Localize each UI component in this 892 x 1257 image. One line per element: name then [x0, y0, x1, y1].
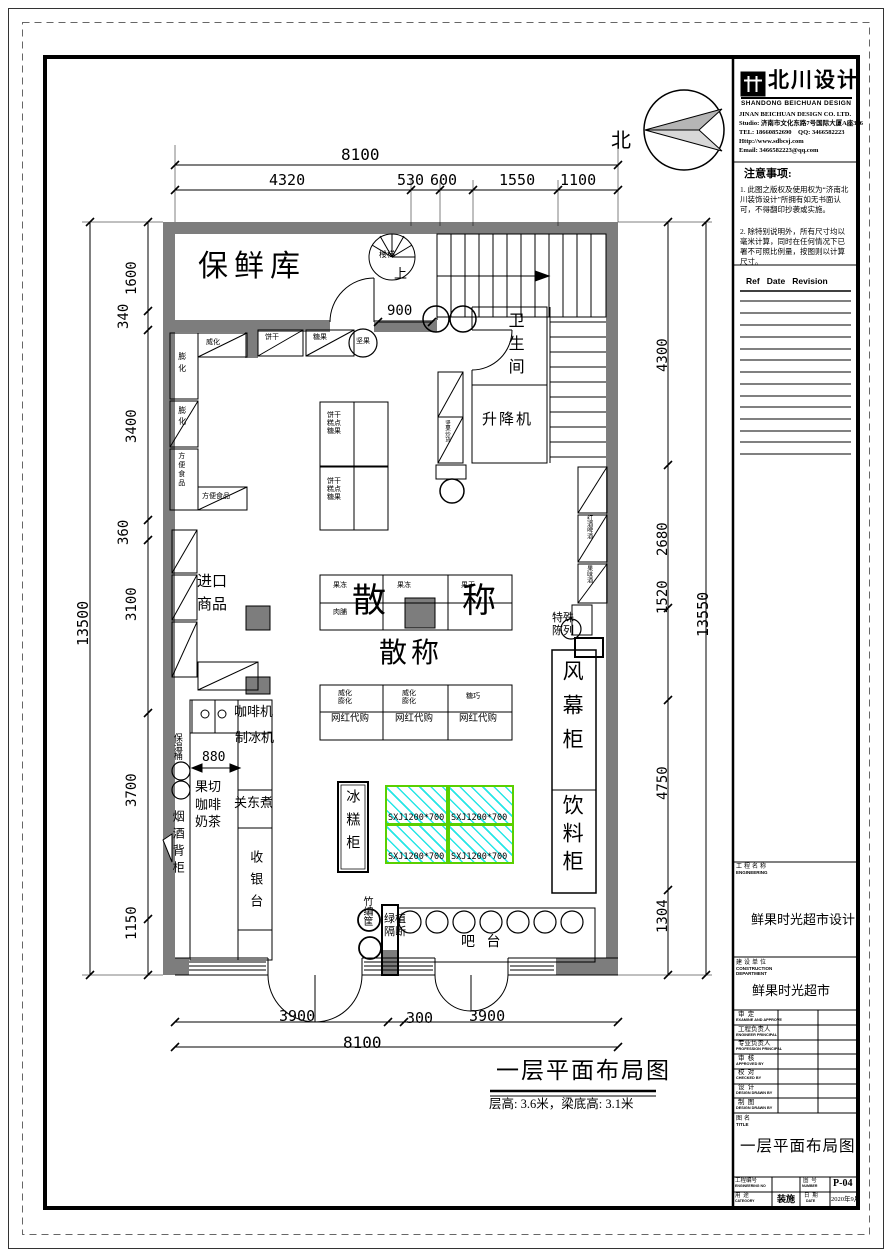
bulk-weigh-left: 散 — [352, 583, 386, 620]
drink-cabinet-label: 饮料柜 — [560, 794, 583, 892]
room-toilet: 卫生间 — [505, 312, 523, 388]
dim-left-6: 3700 — [124, 762, 140, 818]
shelf-wafer-top: 威化 — [206, 339, 220, 347]
footer-number-label-en: NUMBER — [802, 1185, 817, 1189]
dim-counter-880: 880 — [202, 750, 225, 765]
signature-row-examine-en: EXAMINE AND APPROVE — [736, 1019, 782, 1023]
footer-date-label-en: DATE — [806, 1200, 815, 1204]
footer-category-label-en: CATEGORY — [735, 1200, 754, 1204]
notes-title: 注意事项: — [744, 168, 792, 180]
dim-bottom-1: 3900 — [279, 1007, 315, 1025]
dim-top-5: 1100 — [560, 171, 596, 189]
air-curtain-cabinet-label: 风幕柜 — [560, 660, 583, 786]
dim-top-4: 1550 — [499, 171, 535, 189]
shelf-side-small: 坚果炒货 — [444, 420, 450, 460]
sxj-freezer-cell: SXJ1200*700 — [448, 824, 514, 864]
dim-top-3: 600 — [430, 171, 457, 189]
dim-left-3: 3400 — [124, 398, 140, 454]
sxj-model-label: SXJ1200*700 — [451, 852, 507, 862]
bamboo-basket-label: 竹编筐 — [361, 896, 372, 958]
signature-row-design-en: DESIGN DRAWN BY — [736, 1092, 772, 1096]
stair-note: 楼梯 — [379, 251, 395, 260]
construction-value: 鲜果时光超市 — [752, 984, 830, 998]
sxj-freezer-cell: SXJ1200*700 — [448, 785, 514, 825]
bulk-weigh-2: 散称 — [379, 639, 443, 670]
dim-right-1: 4300 — [655, 326, 671, 384]
shelf-puffed-2: 膨化 — [177, 406, 186, 446]
room-fresh-store: 保鲜库 — [198, 250, 306, 283]
dim-bottom-3: 3900 — [469, 1007, 505, 1025]
circles — [172, 306, 583, 959]
dim-left-1: 1600 — [124, 252, 140, 304]
company-line-5: Email: 3466582223@qq.com — [739, 148, 818, 155]
dim-right-3: 1520 — [655, 568, 671, 626]
dim-left-2: 340 — [116, 298, 132, 334]
dim-left-7: 1150 — [124, 898, 140, 948]
shelf-wine-beer: 红酒啤酒 — [585, 515, 592, 561]
dim-top-total: 8100 — [341, 145, 380, 164]
company-line-1: JINAN BEICHUAN DESIGN CO. LTD. — [739, 112, 851, 119]
signature-row-checked-en: CHECKED BY — [736, 1077, 761, 1081]
logo-text: 北川设计 — [768, 69, 860, 92]
special-display-label: 特殊陈列 — [552, 612, 576, 637]
shelf-convenience-v: 方便食品 — [177, 452, 185, 508]
plan-caption-subtitle: 层高: 3.6米，梁底高: 3.1米 — [489, 1098, 633, 1112]
dim-left-total: 13500 — [74, 585, 90, 661]
sheet-title-value: 一层平面布局图 — [740, 1138, 856, 1155]
fruit-cut-label: 果切咖啡奶茶 — [195, 778, 225, 831]
bulk-weigh-right: 称 — [462, 583, 496, 620]
footer-number-value: P-04 — [833, 1179, 852, 1189]
wc-lift-rooms — [436, 307, 547, 479]
shelf-candy-chocolate: 糖巧 — [466, 693, 480, 701]
company-line-4: Http://www.sdbcsj.com — [739, 139, 804, 146]
counters — [163, 650, 596, 975]
cigarette-cabinet-label: 烟酒背柜 — [171, 810, 184, 904]
company-line-2: Studio: 济南市文化东路7号国际大厦A座306 — [739, 121, 863, 128]
dim-right-4: 4750 — [655, 753, 671, 813]
signature-row-engineer-en: ENGINEER PRINCIPAL — [736, 1034, 777, 1038]
shelf-meat-jerky: 肉脯 — [333, 609, 347, 617]
dim-top-1: 4320 — [269, 171, 305, 189]
shelf-imported-goods: 进口商品 — [197, 571, 231, 616]
dim-left-4: 360 — [116, 514, 132, 550]
dim-bottom-total: 8100 — [343, 1033, 382, 1052]
sxj-model-label: SXJ1200*700 — [388, 852, 444, 862]
signature-row-drawn-en: DESIGN DRAWN BY — [736, 1107, 772, 1111]
shelf-convenience-h: 方便食品 — [202, 493, 230, 501]
dim-right-2: 2680 — [655, 510, 671, 568]
dim-right-5: 1304 — [655, 888, 671, 944]
shelf-biscuit-top: 饼干 — [265, 334, 279, 342]
engineering-value: 鲜果时光超市设计 — [751, 913, 855, 927]
sxj-freezer-cell: SXJ1200*700 — [385, 785, 448, 825]
shelf-wanghong-3: 网红代购 — [459, 714, 497, 724]
shelf-wafer-puffed-2: 威化膨化 — [402, 689, 418, 705]
north-compass-icon — [644, 90, 724, 170]
stair-up-label: 上 — [394, 267, 407, 281]
cashier-label: 收银台 — [248, 850, 262, 922]
ice-maker-label: 制冰机 — [235, 731, 274, 745]
north-label: 北 — [611, 130, 631, 152]
shelf-fruit-wine: 果味酒 — [585, 565, 592, 603]
dim-top-2: 530 — [397, 171, 424, 189]
footer-engineering-no-en: ENGINEERING NO — [735, 1185, 766, 1189]
footer-category-value: 装施 — [777, 1195, 795, 1204]
oden-label: 关东煮 — [234, 796, 273, 810]
sxj-freezer-cell: SXJ1200*700 — [385, 824, 448, 864]
dim-bottom-2: 300 — [406, 1009, 433, 1027]
company-line-3: TEL: 18660852690 QQ: 3466582223 — [739, 130, 844, 137]
shelf-jelly-1: 果冻 — [333, 582, 347, 590]
coffee-machine-label: 咖啡机 — [234, 705, 273, 719]
signature-row-approved-en: APPROVED BY — [736, 1063, 764, 1067]
shelf-jelly-2: 果冻 — [397, 582, 411, 590]
shelf-center-unit-1: 饼干糕点糖果 — [327, 411, 342, 435]
shelving — [170, 330, 607, 740]
shelf-center-unit-2: 饼干糕点糖果 — [327, 477, 342, 501]
ice-cream-cabinet-label: 冰糕柜 — [344, 789, 359, 869]
dim-right-total: 13550 — [694, 576, 710, 652]
shelf-wanghong-2: 网红代购 — [395, 714, 433, 724]
plan-caption-title: 一层平面布局图 — [496, 1058, 671, 1083]
notes-item-2: 2. 除特别说明外，所有尺寸均以毫米计算，同时在任何情况下已署不可照比例量，按图… — [740, 227, 852, 268]
dim-left-5: 3100 — [124, 576, 140, 632]
construction-label-en2: DEPARTMENT — [736, 972, 767, 977]
footer-date-value: 2020年9月 — [831, 1197, 860, 1204]
logo-subtext: SHANDONG BEICHUAN DESIGN — [741, 100, 851, 107]
shelf-nuts-circle: 坚果 — [356, 338, 370, 346]
notes-item-1: 1. 此图之版权及使用权为“济南北川装饰设计”所拥有如无书面认可，不得翻印抄袭或… — [740, 185, 852, 215]
room-lift: 升降机 — [482, 412, 533, 429]
revision-header: Ref Date Revision — [746, 277, 828, 286]
sxj-model-label: SXJ1200*700 — [451, 813, 507, 823]
engineering-label-en: ENGINEERING — [736, 871, 768, 876]
drawing-sheet: SXJ1200*700 SXJ1200*700 SXJ1200*700 SXJ1… — [0, 0, 892, 1257]
shelf-wafer-puffed-1: 威化膨化 — [338, 689, 354, 705]
signature-row-profession-en: PROFESSION PRINCIPAL — [736, 1048, 782, 1052]
sheet-title-label-en: TITLE — [736, 1123, 749, 1128]
shelf-wanghong-1: 网红代购 — [331, 714, 369, 724]
caption-underline — [490, 1091, 656, 1096]
shelf-puffed-1: 膨化 — [177, 352, 186, 398]
shelf-candy-top: 糖果 — [313, 334, 327, 342]
bar-counter-label: 吧 台 — [461, 935, 505, 950]
plant-divider-label: 绿植隔断 — [384, 913, 408, 938]
sxj-model-label: SXJ1200*700 — [388, 813, 444, 823]
thermal-barrel-label: 保温桶 — [172, 733, 182, 795]
dim-stair-900: 900 — [387, 303, 412, 319]
